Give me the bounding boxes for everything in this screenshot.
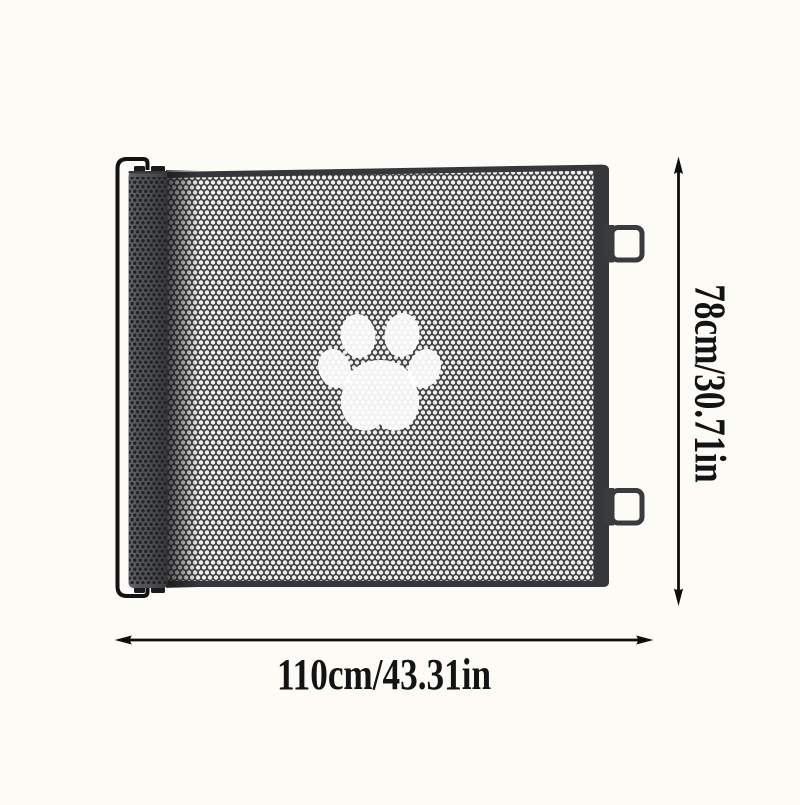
svg-text:78cm/30.71in: 78cm/30.71in [686,284,736,482]
svg-text:110cm/43.31in: 110cm/43.31in [277,649,491,699]
